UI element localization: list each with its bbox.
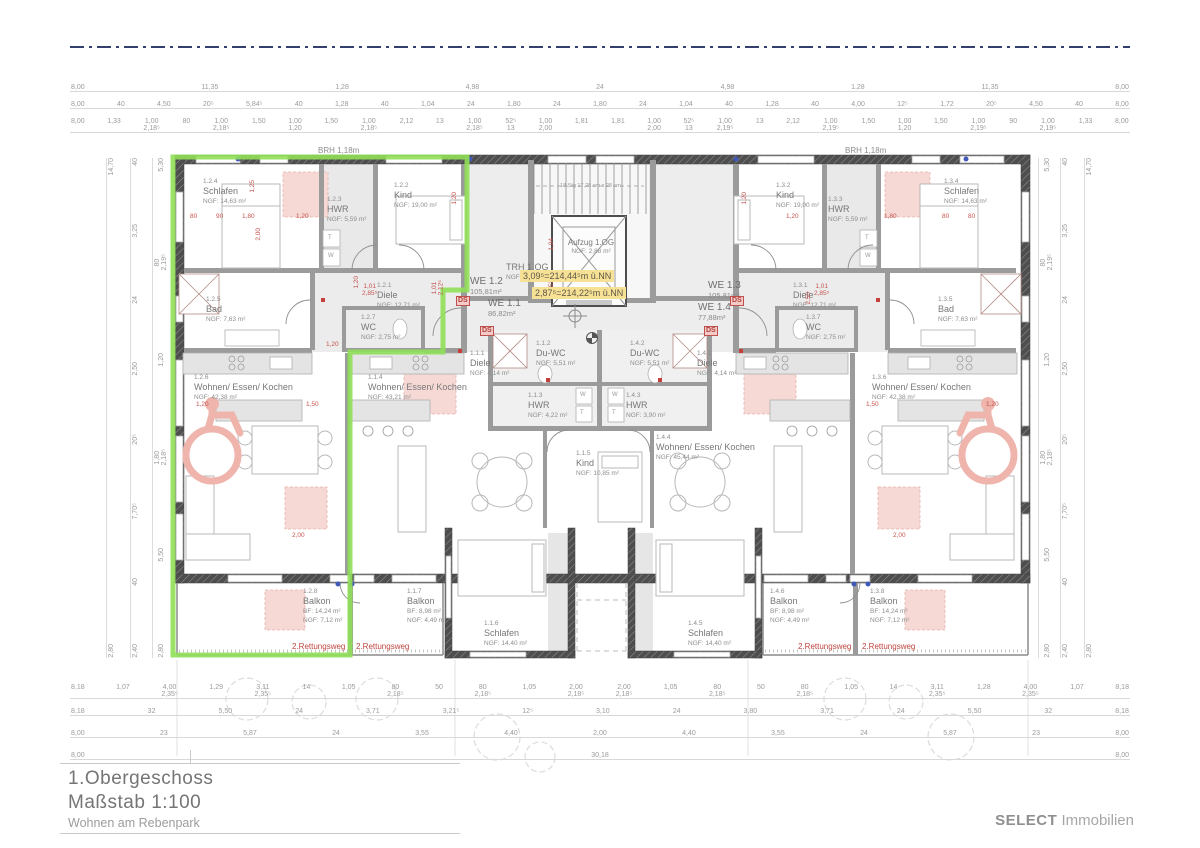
dimension-label: 14,70 <box>107 158 116 176</box>
interior-dimension: 1,50 <box>866 402 879 409</box>
dimension-label: 24 <box>1061 296 1070 304</box>
project-name: Wohnen am Rebenpark <box>68 816 200 830</box>
interior-dimension: 80 <box>942 214 949 221</box>
dimension-label: 1,00 2,18⁵ <box>142 118 161 132</box>
dimension-label: 2,80 <box>1043 644 1052 658</box>
dimension-label: 8,00 <box>1114 101 1130 108</box>
dimension-label: 3,10 <box>595 708 611 715</box>
dimension-label: 4,00 <box>850 101 866 108</box>
unit-area: 105,81m² <box>470 288 503 297</box>
dimension-label: 24 <box>331 730 341 737</box>
dimension-label: 4,98 <box>465 84 481 91</box>
room-id: 1.4.3 <box>626 392 665 400</box>
dimension-label: 1,29 <box>208 684 224 691</box>
dimension-label: 1,00 2,18⁵ <box>360 118 379 132</box>
room-area: NGF: 4,22 m² <box>528 412 567 420</box>
dimension-label: 2,40 <box>131 644 140 658</box>
room-id: 1.1.1 <box>470 350 510 358</box>
dimension-label: 4,00 2,35⁵ <box>160 684 179 698</box>
company-logo: SELECT Immobilien <box>995 812 1134 829</box>
room-name: Du-WC <box>536 348 575 360</box>
dimension-label: 14,70 <box>1085 158 1094 176</box>
room-area: NGF: 10,85 m² <box>576 470 619 478</box>
interior-dimension: 2,00 <box>292 533 305 540</box>
dimension-label: 52⁵ 13 <box>504 118 517 132</box>
dimension-label: 1,05 <box>663 684 679 691</box>
dimension-label: 1,20 <box>157 353 166 367</box>
room-label-1-2-1: 1.2.1 Diele NGF: 12,71 m² <box>377 282 420 311</box>
room-id: 1.4.1 <box>697 350 737 358</box>
dimension-label: 8,00 <box>70 101 86 108</box>
dimension-label: 40 <box>116 101 126 108</box>
dimension-label: 20⁵ <box>1061 434 1070 445</box>
dimension-label: 13 <box>755 118 765 125</box>
room-area-ngf: NGF: 4,49 m² <box>770 617 809 625</box>
room-id: 1.3.6 <box>872 374 971 382</box>
interior-dimension: 1,50 <box>306 402 319 409</box>
dimension-label: 13 <box>435 118 445 125</box>
dimension-label: 1,05 <box>522 684 538 691</box>
room-name: Diele <box>697 358 737 370</box>
room-id: 1.2.8 <box>303 588 342 596</box>
dimension-label: 24 <box>294 708 304 715</box>
unit-label-we-1-4: WE 1.4 77,88m² <box>698 302 731 322</box>
room-area: NGF: 14,63 m² <box>944 198 987 206</box>
dimension-label: 1,28 <box>764 101 780 108</box>
dimension-label: 5,87 <box>242 730 258 737</box>
room-area: NGF: 19,00 m² <box>776 202 819 210</box>
dimension-label: 7,70⁵ <box>131 503 140 520</box>
dimension-label: 8,00 <box>1114 118 1130 125</box>
room-name: Wohnen/ Essen/ Kochen <box>656 442 755 454</box>
dimension-label: 5,30 <box>157 158 166 172</box>
dimension-chain-bottom-1: 8,181,074,00 2,35⁵1,293,11 2,35⁵141,0580… <box>70 684 1130 699</box>
dimension-label: 40 <box>810 101 820 108</box>
room-name: Balkon <box>870 596 909 608</box>
dimension-label: 1,04 <box>420 101 436 108</box>
room-id: 1.4.2 <box>630 340 669 348</box>
dimension-label: 1,33 <box>1078 118 1094 125</box>
room-name: Kind <box>776 190 819 202</box>
room-name: Schlafen <box>484 628 527 640</box>
interior-dimension: 1,20 <box>196 402 209 409</box>
ds-badge: DS <box>730 296 744 306</box>
unit-area: 77,88m² <box>698 314 731 323</box>
dimension-label: 4,00 2,35⁵ <box>1021 684 1040 698</box>
dimension-label: 5,87 <box>942 730 958 737</box>
unit-id: WE 1.3 <box>708 280 741 292</box>
room-area: NGF: 2,88 m² <box>556 248 626 256</box>
washer-letter: W <box>865 253 871 259</box>
room-id: 1.2.7 <box>361 314 400 322</box>
dimension-label: 8,18 <box>70 684 86 691</box>
dimension-label: 20⁵ <box>202 101 215 108</box>
interior-dimension: 2,50 <box>806 292 813 305</box>
dryer-letter: T <box>865 235 869 241</box>
room-label-1-2-4: 1.2.4 Schlafen NGF: 14,63 m² <box>203 178 246 207</box>
room-label-1-2-7: 1.2.7 WC NGF: 2,75 m² <box>361 314 400 343</box>
room-label-1-3-2: 1.3.2 Kind NGF: 19,00 m² <box>776 182 819 211</box>
dimension-label: 5,50 <box>157 548 166 562</box>
title-block-divider <box>190 750 191 763</box>
room-area: NGF: 5,51 m² <box>630 360 669 368</box>
dimension-label: 8,00 <box>70 84 86 91</box>
company-suffix: Immobilien <box>1057 812 1134 829</box>
room-label-1-3-7: 1.3.7 WC NGF: 2,75 m² <box>806 314 845 343</box>
dimension-label: 40 <box>724 101 734 108</box>
interior-dimension: 1,20 <box>452 192 459 205</box>
dimension-label: 8,00 <box>1114 84 1130 91</box>
room-label-1-3-4: 1.3.4 Schlafen NGF: 14,63 m² <box>944 178 987 207</box>
room-id: 1.1.4 <box>368 374 467 382</box>
dimension-label: 23 <box>1031 730 1041 737</box>
unit-label-we-1-2: WE 1.2 105,81m² <box>470 276 503 296</box>
dimension-label: 4,98 <box>720 84 736 91</box>
room-id: 1.3.7 <box>806 314 845 322</box>
room-area: NGF: 2,75 m² <box>361 334 400 342</box>
dimension-label: 1,28 <box>334 84 350 91</box>
room-id: 1.2.1 <box>377 282 420 290</box>
dimension-label: 3,11 2,35⁵ <box>928 684 947 698</box>
dimension-label: 2,00 2,18⁵ <box>567 684 586 698</box>
dryer-letter: T <box>580 410 584 416</box>
room-label-1-3-3: 1.3.3 HWR NGF: 5,59 m² <box>828 196 872 225</box>
room-area: NGF: 12,71 m² <box>793 302 836 310</box>
title-block-rule-bottom <box>60 833 460 834</box>
room-area-bf: BF: 14,24 m² <box>303 608 342 616</box>
dimension-label: 1,05 <box>843 684 859 691</box>
dimension-chain-top-1: 8,0011,351,284,98244,981,2811,358,00 <box>70 84 1130 92</box>
dimension-chain-bottom-3: 8,00235,87243,554,402,004,403,55245,8723… <box>70 730 1130 738</box>
room-area: NGF: 19,00 m² <box>394 202 437 210</box>
room-id: 1.1.7 <box>407 588 446 596</box>
room-label-1-1-7: 1.1.7 Balkon BF: 8,98 m² NGF: 4,49 m² <box>407 588 446 625</box>
room-label-1-2-3: 1.2.3 HWR NGF: 5,59 m² <box>327 196 371 225</box>
dimension-label: 1,00 2,19⁵ <box>716 118 735 132</box>
room-area: NGF: 45,44 m² <box>656 454 755 462</box>
room-label-1-2-5: 1.2.5 Bad NGF: 7,63 m² <box>206 296 245 325</box>
ds-badge: DS <box>480 326 494 336</box>
room-label-1-1-5: 1.1.5 Kind NGF: 10,85 m² <box>576 450 619 479</box>
parapet-note-left: BRH 1,18m <box>318 146 359 155</box>
room-id: 1.2.4 <box>203 178 246 186</box>
dimension-label: 8,00 <box>70 730 86 737</box>
dimension-label: 24 <box>552 101 562 108</box>
dimension-label: 1,07 <box>115 684 131 691</box>
washer-letter: W <box>612 392 618 398</box>
interior-dimension: 1,20 <box>326 342 339 349</box>
washer-letter: W <box>328 253 334 259</box>
interior-dimension: 90 <box>216 214 223 221</box>
dryer-letter: T <box>328 235 332 241</box>
dimension-label: 1,28 <box>334 101 350 108</box>
dimension-label: 8,00 <box>70 118 86 125</box>
room-id: 1.2.5 <box>206 296 245 304</box>
room-id: 1.3.8 <box>870 588 909 596</box>
dimension-label: 4,40 <box>681 730 697 737</box>
room-area: NGF: 5,51 m² <box>536 360 575 368</box>
room-name: HWR <box>828 204 872 216</box>
dimension-label: 80 <box>182 118 192 125</box>
interior-dimension: 1,01 2,85⁵ <box>362 284 377 297</box>
room-id: 1.3.3 <box>828 196 872 204</box>
room-name: WC <box>361 322 400 334</box>
dimension-label: 52⁵ 13 <box>683 118 696 132</box>
dimension-chain-right-1: 5,3080 2,19⁵1,201,80 2,18⁵5,502,80 <box>1038 158 1055 658</box>
parapet-note-right: BRH 1,18m <box>845 146 886 155</box>
room-name: Balkon <box>303 596 342 608</box>
interior-dimension: 2,00 <box>256 228 263 241</box>
dimension-label: 14 <box>889 684 899 691</box>
dimension-label: 1,72 <box>939 101 955 108</box>
room-name: Schlafen <box>203 186 246 198</box>
dimension-label: 5,50 <box>218 708 234 715</box>
dimension-label: 1,81 <box>574 118 590 125</box>
room-area: NGF: 5,59 m² <box>327 216 371 224</box>
dimension-label: 1,80 2,18⁵ <box>1039 449 1055 466</box>
dimension-chain-bottom-4: 8,0030,188,00 <box>70 752 1130 760</box>
interior-dimension: 80 <box>968 214 975 221</box>
dimension-label: 3,55 <box>770 730 786 737</box>
dimension-label: 80 2,19⁵ <box>153 254 169 271</box>
escape-route-label: 2.Rettungsweg <box>292 642 345 651</box>
dimension-label: 1,80 <box>506 101 522 108</box>
room-area: NGF: 43,21 m² <box>368 394 467 402</box>
room-label-1-4-5: 1.4.5 Schlafen NGF: 14,40 m² <box>688 620 731 649</box>
dimension-label: 40 <box>1061 158 1070 166</box>
room-name: Diele <box>377 290 420 302</box>
dimension-chain-left-2: 403,25242,5020⁵7,70⁵402,40 <box>130 158 140 658</box>
room-name: Wohnen/ Essen/ Kochen <box>194 382 293 394</box>
dimension-label: 3,71 <box>365 708 381 715</box>
interior-dimension: 1,04 <box>549 238 556 251</box>
dimension-label: 24 <box>595 84 605 91</box>
room-label-1-2-2: 1.2.2 Kind NGF: 19,00 m² <box>394 182 437 211</box>
dimension-label: 1,00 2,18⁵ <box>465 118 484 132</box>
title-block-rule-top <box>60 763 460 764</box>
dimension-label: 2,50 <box>1061 362 1070 376</box>
room-area: NGF: 4,14 m² <box>697 370 737 378</box>
dimension-label: 1,00 2,19⁵ <box>969 118 988 132</box>
dimension-label: 80 2,19⁵ <box>1039 254 1055 271</box>
washer-letter: W <box>580 392 586 398</box>
dimension-label: 1,81 <box>610 118 626 125</box>
dimension-label: 40 <box>131 578 140 586</box>
dimension-label: 1,00 1,20 <box>287 118 303 132</box>
room-id: 1.4.6 <box>770 588 809 596</box>
dimension-label: 2,80 <box>1085 644 1094 658</box>
dimension-label: 50 <box>756 684 766 691</box>
dimension-label: 3,80 <box>743 708 759 715</box>
dimension-label: 7,70⁵ <box>1061 503 1070 520</box>
unit-id: WE 1.4 <box>698 302 731 314</box>
dimension-label: 40 <box>294 101 304 108</box>
room-name: Wohnen/ Essen/ Kochen <box>872 382 971 394</box>
dimension-label: 1,50 <box>933 118 949 125</box>
unit-id: WE 1.2 <box>470 276 503 288</box>
dimension-label: 3,25 <box>1061 224 1070 238</box>
room-name: Balkon <box>770 596 809 608</box>
room-area-ngf: NGF: 7,12 m² <box>303 617 342 625</box>
dimension-label: 4,50 <box>1028 101 1044 108</box>
dimension-label: 1,00 1,20 <box>897 118 913 132</box>
room-label-1-3-6: 1.3.6 Wohnen/ Essen/ Kochen NGF: 42,38 m… <box>872 374 971 403</box>
dimension-label: 40 <box>1061 578 1070 586</box>
dimension-label: 40 <box>131 158 140 166</box>
dimension-label: 1,04 <box>678 101 694 108</box>
room-label-1-1-3: 1.1.3 HWR NGF: 4,22 m² <box>528 392 567 421</box>
dimension-label: 8,00 <box>1114 730 1130 737</box>
room-id: 1.1.2 <box>536 340 575 348</box>
room-id: 1.2.2 <box>394 182 437 190</box>
dimension-label: 50 <box>434 684 444 691</box>
dimension-label: 2,80 <box>157 644 166 658</box>
dimension-label: 8,00 <box>70 752 86 759</box>
room-area: NGF: 5,59 m² <box>828 216 872 224</box>
interior-dimension: 1,01 2,12⁵ <box>432 280 445 295</box>
interior-dimension: 1,20 <box>786 214 799 221</box>
dimension-label: 32 <box>147 708 157 715</box>
dimension-label: 1,50 <box>861 118 877 125</box>
room-label-1-4-1: 1.4.1 Diele NGF: 4,14 m² <box>697 350 737 379</box>
dimension-label: 1,28 <box>850 84 866 91</box>
stair-count-note: 18 Stg 17,28 cm x 28 cm <box>560 183 621 189</box>
dimension-chain-left-3: 5,3080 2,19⁵1,201,80 2,18⁵5,502,80 <box>152 158 169 658</box>
room-name: Balkon <box>407 596 446 608</box>
interior-dimension: 1,20 <box>296 214 309 221</box>
dimension-label: 3,11 2,35⁵ <box>254 684 273 698</box>
dimension-label: 1,50 <box>251 118 267 125</box>
room-id: 1.3.5 <box>938 296 977 304</box>
dimension-label: 8,18 <box>1114 684 1130 691</box>
room-id: 1.2.6 <box>194 374 293 382</box>
room-label-1-2-8: 1.2.8 Balkon BF: 14,24 m² NGF: 7,12 m² <box>303 588 342 625</box>
escape-route-label: 2.Rettungsweg <box>862 642 915 651</box>
dimension-label: 1,50 <box>323 118 339 125</box>
ds-badge: DS <box>704 326 718 336</box>
dimension-label: 3,71 <box>819 708 835 715</box>
room-area-ngf: NGF: 4,49 m² <box>407 617 446 625</box>
dimension-label: 5,50 <box>967 708 983 715</box>
room-area: NGF: 42,38 m² <box>872 394 971 402</box>
dimension-label: 2,50 <box>131 362 140 376</box>
dimension-label: 4,50 <box>156 101 172 108</box>
dimension-label: 32 <box>1043 708 1053 715</box>
room-label-1-3-5: 1.3.5 Bad NGF: 7,63 m² <box>938 296 977 325</box>
room-area: NGF: 2,75 m² <box>806 334 845 342</box>
dimension-label: 8,18 <box>1114 708 1130 715</box>
unit-area: 86,82m² <box>488 310 521 319</box>
room-area: NGF: 7,63 m² <box>206 316 245 324</box>
room-area-bf: BF: 14,24 m² <box>870 608 909 616</box>
interior-dimension: 1,80 <box>242 214 255 221</box>
dimension-label: 80 2,18⁵ <box>708 684 727 698</box>
dimension-label: 3,21⁵ <box>442 708 461 715</box>
room-id: 1.1.3 <box>528 392 567 400</box>
room-name: WC <box>806 322 845 334</box>
room-label-1-1-1: 1.1.1 Diele NGF: 4,14 m² <box>470 350 510 379</box>
room-label-1-4-4: 1.4.4 Wohnen/ Essen/ Kochen NGF: 45,44 m… <box>656 434 755 463</box>
dimension-label: 24 <box>638 101 648 108</box>
dimension-label: 24 <box>859 730 869 737</box>
room-name: Aufzug 1.OG <box>556 238 626 248</box>
room-id: 1.1.5 <box>576 450 619 458</box>
interior-dimension: 1,20 <box>354 276 361 289</box>
interior-dimension: 1,20 <box>986 402 999 409</box>
dimension-label: 1,28 <box>976 684 992 691</box>
dimension-label: 24 <box>672 708 682 715</box>
room-label-1-1-4: 1.1.4 Wohnen/ Essen/ Kochen NGF: 43,21 m… <box>368 374 467 403</box>
dimension-label: 2,00 2,18⁵ <box>615 684 634 698</box>
dimension-label: 1,00 2,19⁵ <box>1039 118 1058 132</box>
room-area: NGF: 14,40 m² <box>484 640 527 648</box>
dimension-label: 24 <box>466 101 476 108</box>
elevation-note-lower: 2,87⁵=214,22⁵m ü.NN <box>532 287 626 299</box>
dimension-label: 80 2,18⁵ <box>795 684 814 698</box>
dimension-chain-top-2: 8,00404,5020⁵5,84⁵401,28401,04241,80241,… <box>70 101 1130 109</box>
unit-id: WE 1.1 <box>488 298 521 310</box>
room-name: Bad <box>938 304 977 316</box>
dimension-chain-right-2: 403,25242,5020⁵7,70⁵402,40 <box>1060 158 1070 658</box>
dimension-label: 1,20 <box>1043 353 1052 367</box>
interior-dimension: 2,00 <box>893 533 906 540</box>
dimension-label: 5,50 <box>1043 548 1052 562</box>
dimension-label: 14 <box>302 684 312 691</box>
dimension-label: 8,00 <box>1114 752 1130 759</box>
dimension-label: 4,40 <box>503 730 519 737</box>
room-name: HWR <box>528 400 567 412</box>
company-name: SELECT <box>995 812 1057 829</box>
dimension-label: 20⁵ <box>985 101 998 108</box>
dimension-label: 11,35 <box>200 84 219 91</box>
room-label-1-3-8: 1.3.8 Balkon BF: 14,24 m² NGF: 7,12 m² <box>870 588 909 625</box>
dryer-letter: T <box>612 410 616 416</box>
dimension-label: 1,00 2,00 <box>646 118 662 132</box>
interior-dimension: 1,20 <box>742 192 749 205</box>
elevator-label: Aufzug 1.OG NGF: 2,88 m² <box>556 238 626 257</box>
room-label-1-4-3: 1.4.3 HWR NGF: 3,90 m² <box>626 392 665 421</box>
dimension-label: 1,00 2,19⁵ <box>821 118 840 132</box>
interior-dimension: 1,25 <box>250 180 257 193</box>
room-area-bf: BF: 8,98 m² <box>770 608 809 616</box>
room-area: NGF: 7,63 m² <box>938 316 977 324</box>
floor-title: 1.Obergeschoss <box>68 768 213 790</box>
dimension-label: 2,40 <box>1061 644 1070 658</box>
dimension-label: 3,55 <box>414 730 430 737</box>
dimension-label: 11,35 <box>981 84 1000 91</box>
dimension-chain-top-3: 8,001,331,00 2,18⁵801,00 2,18⁵1,501,00 1… <box>70 118 1130 133</box>
dimension-label: 80 2,18⁵ <box>386 684 405 698</box>
interior-dimension: 1,80 <box>884 214 897 221</box>
room-name: Bad <box>206 304 245 316</box>
room-name: Wohnen/ Essen/ Kochen <box>368 382 467 394</box>
dimension-label: 5,84⁵ <box>245 101 264 108</box>
room-id: 1.1.6 <box>484 620 527 628</box>
room-area-bf: BF: 8,98 m² <box>407 608 446 616</box>
room-name: Kind <box>576 458 619 470</box>
dimension-label: 5,30 <box>1043 158 1052 172</box>
dimension-label: 1,80 2,18⁵ <box>153 449 169 466</box>
dimension-label: 1,05 <box>341 684 357 691</box>
room-label-1-4-2: 1.4.2 Du-WC NGF: 5,51 m² <box>630 340 669 369</box>
dimension-label: 24 <box>131 296 140 304</box>
dimension-label: 3,25 <box>131 224 140 238</box>
room-area: NGF: 12,71 m² <box>377 302 420 310</box>
dimension-label: 90 <box>1008 118 1018 125</box>
room-name: Kind <box>394 190 437 202</box>
dimension-label: 20⁵ <box>131 434 140 445</box>
room-area: NGF: 14,63 m² <box>203 198 246 206</box>
